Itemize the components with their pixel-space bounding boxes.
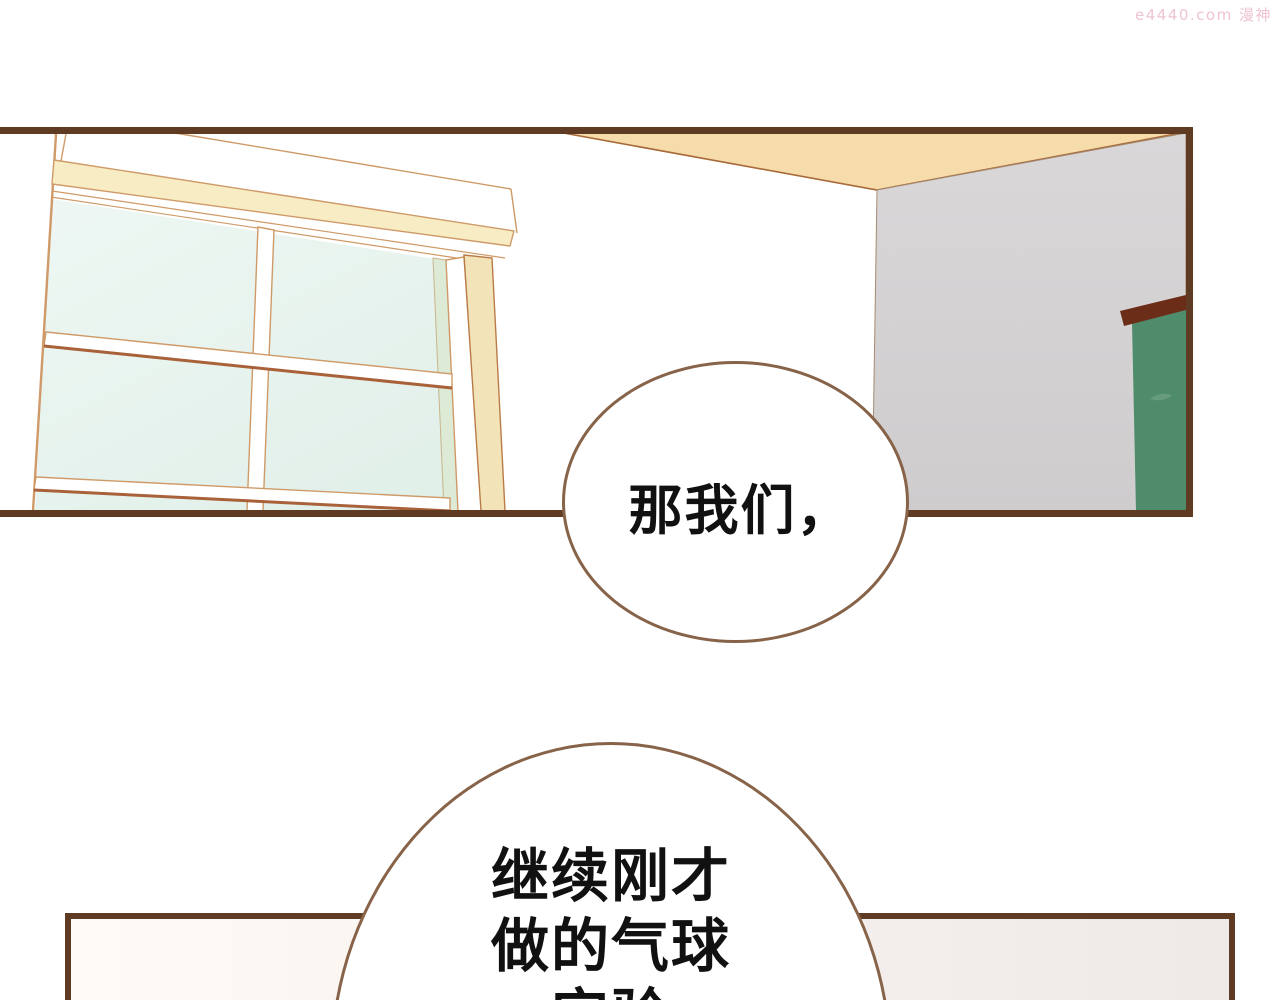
panel-border-right: [1186, 127, 1193, 517]
panel-border-top: [0, 127, 1193, 134]
speech-bubble-1: 那我们，: [562, 361, 909, 643]
chalkboard: [1132, 309, 1186, 511]
speech-bubble-2-text: 继续刚才 做的气球 实验: [333, 841, 889, 1000]
speech-bubble-2-line1: 继续刚才: [333, 841, 889, 911]
watermark-text: e4440.com 漫神: [1135, 4, 1272, 25]
comic-page: e4440.com 漫神: [0, 0, 1280, 1000]
speech-bubble-2-line2: 做的气球: [333, 911, 889, 981]
speech-bubble-2: 继续刚才 做的气球 实验: [330, 742, 892, 1000]
speech-bubble-1-text: 那我们，: [619, 466, 853, 545]
speech-bubble-2-line3: 实验: [333, 981, 889, 1000]
